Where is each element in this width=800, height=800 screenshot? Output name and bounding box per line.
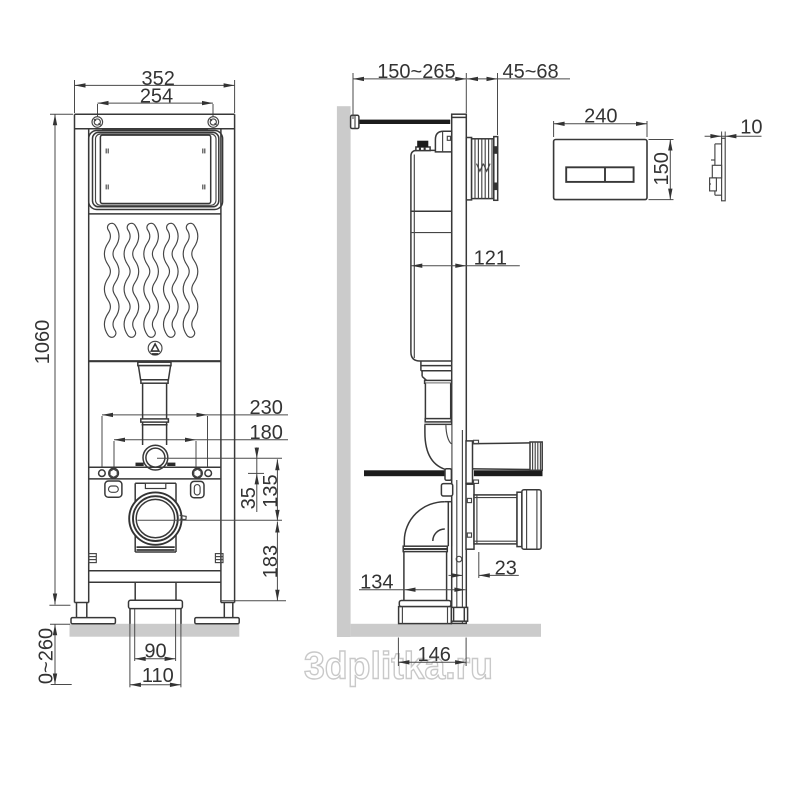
svg-text:135: 135 xyxy=(260,474,282,507)
svg-text:23: 23 xyxy=(495,557,517,579)
svg-text:35: 35 xyxy=(238,487,260,509)
svg-text:146: 146 xyxy=(418,644,451,666)
svg-text:254: 254 xyxy=(140,85,173,107)
svg-text:150~265: 150~265 xyxy=(377,61,455,83)
svg-text:121: 121 xyxy=(474,248,507,270)
svg-text:134: 134 xyxy=(360,572,393,594)
svg-text:1060: 1060 xyxy=(32,320,54,365)
svg-text:180: 180 xyxy=(250,422,283,444)
svg-text:150: 150 xyxy=(651,152,673,185)
svg-text:183: 183 xyxy=(260,545,282,578)
svg-text:90: 90 xyxy=(144,641,166,663)
svg-text:45~68: 45~68 xyxy=(503,61,559,83)
svg-text:240: 240 xyxy=(584,106,617,128)
svg-text:110: 110 xyxy=(142,665,174,687)
svg-text:230: 230 xyxy=(250,397,283,419)
svg-text:0~260: 0~260 xyxy=(36,628,58,684)
svg-text:10: 10 xyxy=(740,117,762,139)
